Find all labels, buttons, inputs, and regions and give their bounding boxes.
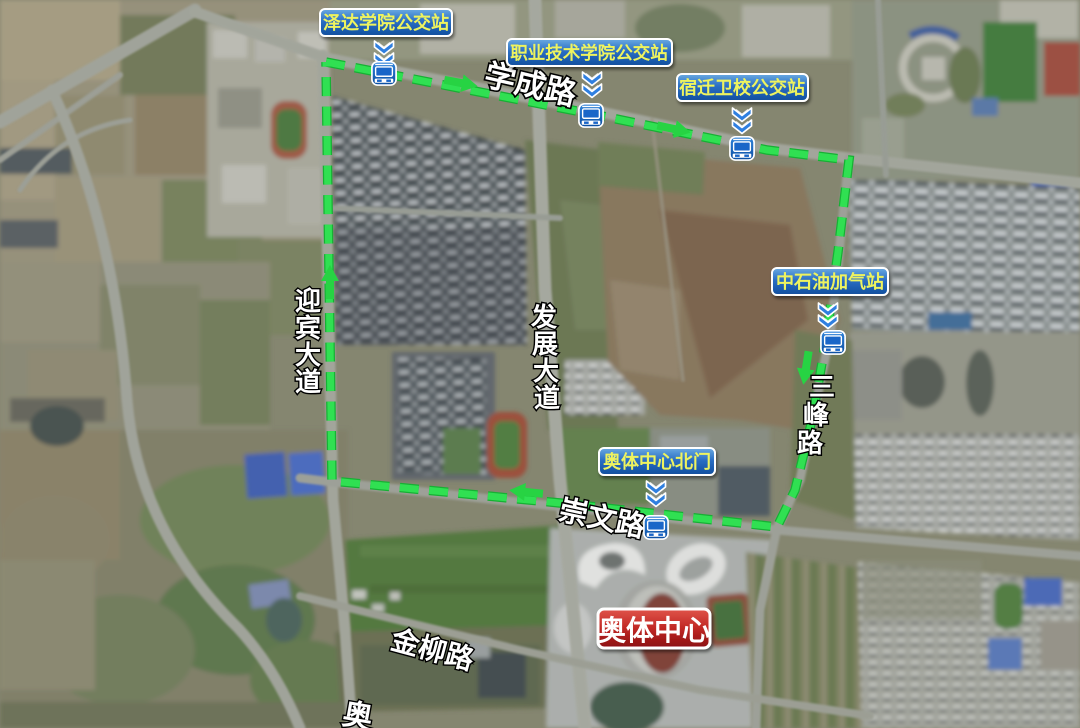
svg-text:奥: 奥: [340, 697, 375, 728]
svg-text:宿迁卫校公交站: 宿迁卫校公交站: [679, 77, 805, 98]
svg-text:奥体中心北门: 奥体中心北门: [603, 451, 711, 472]
svg-text:泽达学院公交站: 泽达学院公交站: [323, 12, 449, 33]
svg-text:中石油加气站: 中石油加气站: [776, 271, 884, 292]
svg-text:职业技术学院公交站: 职业技术学院公交站: [510, 43, 668, 63]
svg-text:迎宾大道: 迎宾大道: [295, 286, 321, 397]
svg-text:发展大道: 发展大道: [530, 302, 560, 413]
svg-text:奥体中心: 奥体中心: [598, 615, 710, 646]
